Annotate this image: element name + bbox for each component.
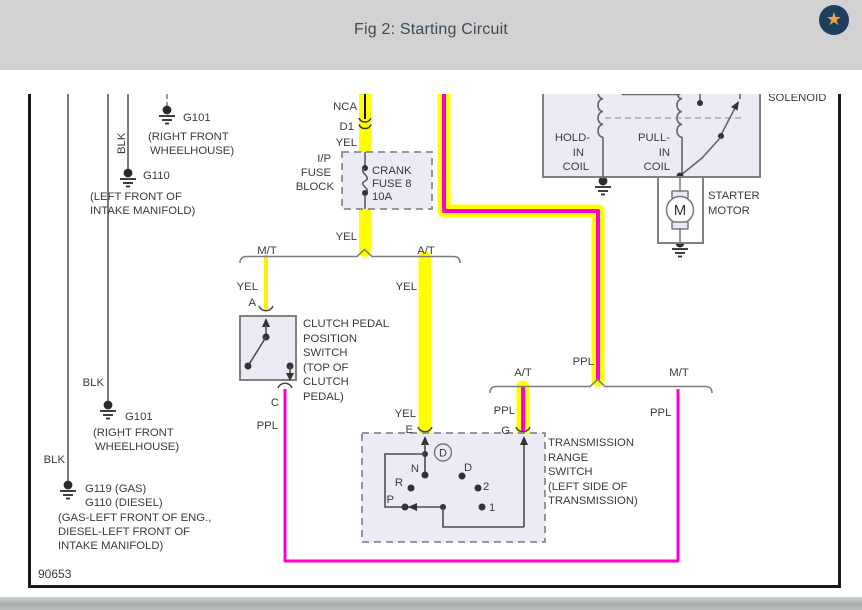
trs-name5: TRANSMISSION) [548, 495, 638, 507]
horizontal-scrollbar[interactable] [0, 597, 862, 610]
app-window: Fig 2: Starting Circuit ★ [0, 0, 862, 610]
fuse-line1: CRANK [372, 165, 412, 177]
g119-loc2: DIESEL-LEFT FRONT OF [58, 526, 190, 538]
trs-pos-r: R [395, 477, 403, 489]
g110-top-id: G110 [143, 170, 170, 182]
clutch-yel-label: YEL [237, 281, 258, 293]
trs-pos-d-circled: D [439, 448, 447, 460]
ground-solenoid [595, 178, 611, 195]
favorite-star-button[interactable]: ★ [819, 5, 849, 35]
g101-top-id: G101 [183, 112, 211, 124]
terminal-c-connector [278, 383, 292, 388]
g110-top-loc2: INTAKE MANIFOLD) [90, 205, 195, 217]
g101-top-loc1: (RIGHT FRONT [148, 131, 229, 143]
g101-left-loc2: WHEELHOUSE) [95, 441, 179, 453]
wiring-diagram: G101 (RIGHT FRONT WHEELHOUSE) BLK G110 (… [0, 70, 862, 597]
g119-id1: G119 (GAS) [85, 483, 147, 495]
pull-in-3: COIL [644, 161, 670, 173]
clutch-name5: CLUTCH [303, 376, 349, 388]
fuse-line2: FUSE 8 [372, 178, 412, 190]
clutch-name2: POSITION [303, 333, 357, 345]
fuse-block-name3: BLOCK [296, 181, 335, 193]
g119-id2: G110 (DIESEL) [85, 497, 163, 509]
g101-top-loc2: WHEELHOUSE) [150, 145, 234, 157]
title-bar: Fig 2: Starting Circuit ★ [0, 0, 862, 71]
g110-top-loc1: (LEFT FRONT OF [90, 191, 182, 203]
split1-left-label: M/T [257, 245, 277, 257]
diagram-canvas: G101 (RIGHT FRONT WHEELHOUSE) BLK G110 (… [0, 70, 862, 597]
hold-in-1: HOLD- [555, 132, 590, 144]
d1-label: D1 [340, 121, 354, 133]
motor-m-label: M [674, 202, 687, 219]
clutch-name3: SWITCH [303, 347, 348, 359]
diagram-code: 90653 [38, 567, 72, 581]
terminal-a-label: A [248, 297, 256, 309]
solenoid-label: SOLENOID [768, 92, 826, 104]
trs-name3: SWITCH [548, 466, 593, 478]
trs-name4: (LEFT SIDE OF [548, 481, 628, 493]
starter-label2: MOTOR [708, 205, 750, 217]
clutch-name6: PEDAL) [303, 391, 344, 403]
terminal-g-label: G [501, 425, 510, 437]
figure-title: Fig 2: Starting Circuit [0, 21, 862, 39]
trans-range-switch-box [362, 433, 545, 542]
blk-label-2: BLK [83, 377, 105, 389]
trs-pos-n: N [411, 463, 419, 475]
trs-name1: TRANSMISSION [548, 437, 634, 449]
split2-feed-ppl-label: PPL [573, 356, 594, 368]
g101-left-id: G101 [125, 411, 153, 423]
fuse-block-name1: I/P [317, 153, 331, 165]
terminal-c-label: C [271, 397, 279, 409]
g119-loc3: INTAKE MANIFOLD) [58, 540, 163, 552]
terminal-e-label: E [405, 424, 413, 436]
blk-rotated-label: BLK [116, 132, 128, 154]
hold-in-2: IN [573, 147, 584, 159]
starter-label1: STARTER [708, 190, 760, 202]
ground-g110-top [120, 170, 136, 187]
yel-above-fuse-label: YEL [336, 137, 357, 149]
blk-label-1: BLK [44, 454, 66, 466]
g101-left-loc1: (RIGHT FRONT [93, 427, 174, 439]
trs-name2: RANGE [548, 452, 589, 464]
at-yel-top-label: YEL [396, 281, 417, 293]
clutch-name1: CLUTCH PEDAL [303, 318, 389, 330]
clutch-ppl-label: PPL [257, 420, 278, 432]
g119-loc1: (GAS-LEFT FRONT OF ENG., [58, 512, 211, 524]
hold-in-3: COIL [563, 161, 589, 173]
trs-pos-d: D [464, 462, 472, 474]
split2-right-label: M/T [669, 367, 689, 379]
split1-right-label: A/T [417, 245, 435, 257]
ground-g119-left [60, 482, 76, 499]
star-icon: ★ [826, 10, 842, 28]
trs-pos-p: P [386, 494, 394, 506]
trs-pos-1: 1 [489, 502, 495, 514]
yel-below-fuse-label: YEL [336, 231, 357, 243]
pull-in-2: IN [659, 147, 670, 159]
split2-right-ppl-label: PPL [650, 407, 671, 419]
nca-label: NCA [333, 101, 357, 113]
ground-g101-top [159, 107, 175, 124]
split2-left-ppl-label: PPL [494, 405, 515, 417]
at-yel-bottom-label: YEL [395, 408, 416, 420]
fuse-line3: 10A [372, 191, 393, 203]
clutch-name4: (TOP OF [303, 362, 349, 374]
trs-pos-2: 2 [483, 481, 489, 493]
pull-in-1: PULL- [638, 132, 670, 144]
ground-g101-left [100, 402, 116, 419]
split2-left-label: A/T [514, 367, 532, 379]
fuse-block-name2: FUSE [301, 167, 332, 179]
